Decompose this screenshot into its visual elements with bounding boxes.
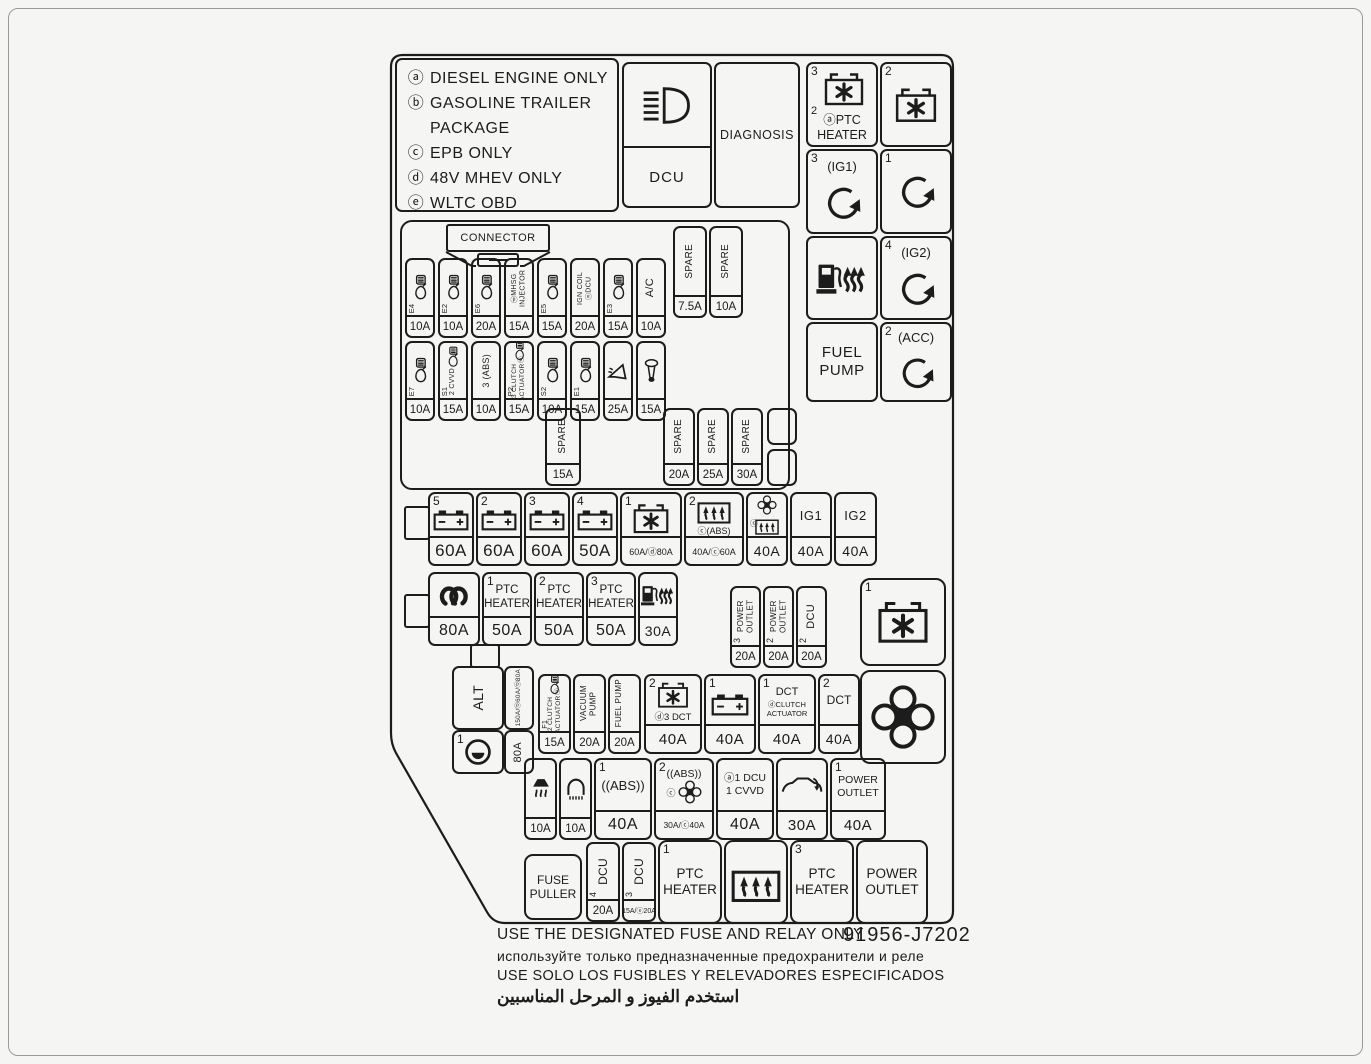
- fuse-sub: P2: [507, 387, 515, 396]
- fuse-amp: 40A/ⓒ60A: [686, 536, 742, 564]
- fuse-label: HEATER: [536, 598, 582, 612]
- relay-ig2: 4 (IG2): [880, 236, 952, 320]
- relay-number: 3: [811, 65, 818, 77]
- cooling-fan-icon: [870, 684, 936, 750]
- fuse-label: ((ABS)): [601, 778, 644, 793]
- fuse-number: 2: [649, 677, 656, 689]
- injector-icon: [412, 274, 429, 301]
- fuse-vehicle: 30A: [776, 758, 828, 840]
- fuse-number: 2: [799, 638, 808, 643]
- fuse-label: ACTUATOR: [767, 709, 808, 718]
- part-number: 91956-J7202: [843, 924, 971, 947]
- heater-blower-icon: [530, 777, 552, 801]
- fuse-power-outlet: 1POWEROUTLET40A: [830, 758, 886, 840]
- fuse: 10A: [524, 758, 557, 840]
- relay-label: FUEL: [822, 344, 862, 362]
- relay-acc: 2 (ACC): [880, 322, 952, 402]
- fuse-label: A/C: [644, 278, 657, 297]
- horn-icon: [606, 359, 630, 382]
- relay-label: PUMP: [819, 362, 864, 380]
- fuse-number: 2: [766, 638, 775, 643]
- low-beam-headlight-icon: [638, 84, 696, 127]
- fuse: 15A: [636, 341, 666, 421]
- fuse-label: POWER OUTLET: [769, 588, 789, 645]
- fuse-amp: 20A: [798, 645, 825, 666]
- fuse-label: DCU: [632, 858, 646, 885]
- fuse-amp: 20A: [732, 645, 759, 666]
- fuse-amp: 15A: [440, 398, 466, 419]
- fuse-label: OUTLET: [837, 787, 878, 800]
- fuse-amp: 7.5A: [675, 295, 705, 316]
- fuse-amp: 10A: [407, 398, 433, 419]
- fuse-amp: 40A: [760, 724, 814, 752]
- legend-text: 48V MHEV ONLY: [430, 166, 562, 191]
- fuse-amp: 25A: [605, 398, 631, 419]
- dcu-cell: DCU: [624, 148, 710, 206]
- relay-fuel-heater: [806, 236, 878, 320]
- legend-key: ⓓ: [407, 166, 425, 191]
- fuse-number: 1: [709, 677, 716, 689]
- fuse-number: 1: [487, 575, 494, 587]
- fuse-amp: 50A: [574, 536, 616, 564]
- fuse-sub: E1: [573, 387, 581, 396]
- spare-fuse: SPARE25A: [697, 408, 729, 486]
- fuse-label: FUEL PUMP: [614, 679, 636, 727]
- fuse-amp: 10A: [440, 315, 466, 336]
- relay-number: 2: [885, 65, 892, 77]
- diagnosis-label: DIAGNOSIS: [716, 64, 798, 206]
- fuse-number: 3: [529, 495, 536, 507]
- fuse: 3 CLUTCH ACTUATORⓓP215A: [504, 341, 534, 421]
- injector-icon: [610, 274, 627, 301]
- relay-number: 3: [795, 843, 802, 855]
- injector-icon: [577, 357, 594, 384]
- relay-ptc1: 1 PTC HEATER: [658, 840, 722, 924]
- fuse-sub: S1: [441, 387, 449, 396]
- rotary-start-icon: [897, 354, 935, 392]
- fuse-label: DCT: [767, 686, 808, 699]
- legend-key: [407, 116, 425, 141]
- ptc-fuse: 30A: [638, 572, 678, 646]
- relay-number: 2: [811, 106, 817, 117]
- mount-tab: [404, 594, 430, 628]
- fuse-dcu: DCU315A/ⓔ20A: [622, 842, 656, 922]
- battery-icon: [529, 507, 565, 532]
- fan-box-icon: [822, 71, 866, 107]
- fuse-label: HEATER: [484, 598, 530, 612]
- fuse-amp: 20A: [665, 463, 693, 484]
- main-fuse: 560A: [428, 492, 474, 566]
- injector-icon: [544, 357, 561, 384]
- relay-label: PTC: [809, 866, 836, 882]
- fuse-amp: 10A: [407, 315, 433, 336]
- alt-fuse: ALT: [452, 666, 504, 730]
- relay-label: OUTLET: [865, 882, 918, 898]
- relay-ig1: 3 (IG1): [806, 149, 878, 234]
- battery-icon: [481, 507, 517, 532]
- fuse-amp: 15A: [540, 731, 569, 752]
- fuse-dct-clutch: 1DCTⓓCLUTCHACTUATOR40A: [758, 674, 816, 754]
- legend-text: DIESEL ENGINE ONLY: [430, 66, 608, 91]
- fuse-number: 2: [539, 575, 546, 587]
- fuse-amp: 30A: [640, 616, 676, 644]
- legend-key: ⓐ: [407, 66, 425, 91]
- fuse-label: ⓓCLUTCH: [767, 700, 808, 709]
- fuse-amp: 40A: [792, 536, 830, 564]
- fuse-amp: 80A: [430, 616, 478, 644]
- fuse-number: 4: [577, 495, 584, 507]
- fuse-sub: S2: [540, 387, 548, 396]
- fuse: E410A: [405, 258, 435, 338]
- warning-text-ru: используйте только предназначенные предо…: [497, 948, 924, 964]
- relay-label: PTC: [677, 866, 704, 882]
- fuse: 140A: [704, 674, 756, 754]
- fuse-abs-fan: 2((ABS))ⓒ30A/ⓒ40A: [654, 758, 714, 840]
- fuse-dcu-cvvd: ⓐ1 DCU1 CVVD40A: [716, 758, 774, 840]
- rear-defrost-icon: [731, 861, 781, 903]
- fuse-label: POWER OUTLET: [736, 588, 756, 645]
- fuse-label: DCU: [805, 604, 818, 629]
- fuse-number: 1: [835, 761, 842, 773]
- relay-number: 2: [885, 325, 892, 337]
- fuse-dct: 2DCT40A: [818, 674, 860, 754]
- fuse-amp: 50A: [536, 616, 582, 644]
- legend-key: ⓑ: [407, 91, 425, 116]
- siren-horn-icon: [644, 358, 659, 384]
- fuse-label: ⓓ3 DCT: [655, 709, 692, 723]
- fuse: E710A: [405, 341, 435, 421]
- fuse-amp: 20A: [473, 315, 499, 336]
- fuse-amp: 40A: [596, 810, 650, 838]
- mount-tab: [404, 506, 430, 540]
- warning-text-ar: استخدم الفيوز و المرحل المناسبين: [497, 987, 739, 1007]
- relay-number: 1: [663, 843, 670, 855]
- mount-tab: [470, 644, 500, 668]
- spare-fuse: SPARE30A: [731, 408, 763, 486]
- legend-text: PACKAGE: [430, 116, 510, 141]
- fan-box-icon: [656, 681, 690, 709]
- spare-fuse: SPARE 15A: [545, 408, 581, 486]
- main-fuse: 360A: [524, 492, 570, 566]
- fuel-pump-heater-icon: [641, 582, 675, 608]
- fuse-label: ⓐ1 DCU: [724, 772, 766, 785]
- fuse-label: 2 CVVD: [449, 368, 457, 395]
- fuse: E515A: [537, 258, 567, 338]
- spare-fuse: SPARE 10A: [709, 226, 743, 318]
- fuse-amp: 150A/ⓓ60A/ⓓ80A: [515, 669, 523, 726]
- fuse-amp: 20A: [610, 731, 639, 752]
- fuse-number: 3: [591, 575, 598, 587]
- injector-icon: [445, 274, 462, 301]
- rear-defrost-icon: [697, 496, 731, 524]
- lamp-icon: [565, 776, 587, 802]
- main-fuse: IG140A: [790, 492, 832, 566]
- spare-fuse: SPARE20A: [663, 408, 695, 486]
- fuse-amp: 40A: [706, 724, 754, 752]
- fuse: 2 CVVDS115A: [438, 341, 468, 421]
- fuse-amp: 20A: [572, 315, 598, 336]
- fuse-amp: 20A: [765, 645, 792, 666]
- legend-text: GASOLINE TRAILER: [430, 91, 592, 116]
- fuse-amp: 60A: [526, 536, 568, 564]
- ptc-fuse: 80A: [428, 572, 480, 646]
- fuse-amp: 20A: [575, 731, 604, 752]
- outlet-fuse: POWER OUTLET320A: [730, 586, 761, 668]
- battery-icon: [711, 691, 749, 717]
- fuse-amp: 15A/ⓔ20A: [624, 899, 654, 920]
- legend: ⓐDIESEL ENGINE ONLY ⓑGASOLINE TRAILER PA…: [395, 58, 619, 212]
- main-fuse: 2ⓒ(ABS)40A/ⓒ60A: [684, 492, 744, 566]
- fuse-number: 2: [481, 495, 488, 507]
- alt-fuse-amp: 150A/ⓓ60A/ⓓ80A: [504, 666, 534, 730]
- fuse-label: ⓒ: [750, 518, 758, 529]
- fuse-amp: 10A: [638, 315, 664, 336]
- spare-label: SPARE: [673, 419, 685, 454]
- fuse-amp: 30A: [778, 810, 826, 838]
- cooling-fan-icon: [678, 780, 702, 804]
- fuse-amp: 50A: [484, 616, 530, 644]
- fuse-amp: 10A: [561, 817, 590, 838]
- legend-key: ⓒ: [407, 141, 425, 166]
- relay-big: 1: [860, 578, 946, 666]
- fuse-sub: F1: [541, 720, 549, 729]
- fuse-label: IG1: [800, 508, 822, 523]
- relay-1: 1: [880, 149, 952, 234]
- relay-number: 1: [885, 152, 892, 164]
- spare-label: SPARE: [684, 244, 696, 279]
- fuse-amp: 80A: [512, 742, 525, 762]
- fuse-label: 1 CVVD: [724, 785, 766, 798]
- fuse-number: 3: [625, 892, 634, 897]
- fuse: FUEL PUMP20A: [608, 674, 641, 754]
- fuse-amp: 60A: [430, 536, 472, 564]
- fuse: 3 (ABS)10A: [471, 341, 501, 421]
- fan-box-icon: [894, 86, 938, 124]
- fuse: 25A: [603, 341, 633, 421]
- empty-slot: [767, 449, 797, 486]
- rotary-start-icon: [822, 183, 862, 223]
- fuse-label: 2 CLUTCH ACTUATORⓓ: [547, 695, 563, 732]
- fuse: 10A: [559, 758, 592, 840]
- fuel-pump-heater-icon: [816, 259, 868, 297]
- fuse-box-diagram: ⓐDIESEL ENGINE ONLY ⓑGASOLINE TRAILER PA…: [0, 0, 1371, 1064]
- relay-label: ⓐPTC: [808, 113, 876, 128]
- relay-ptc3: 3 PTC HEATER: [790, 840, 854, 924]
- fuse: ⓓMHSG INJECTOR15A: [504, 258, 534, 338]
- fuse-amp: 15A: [605, 315, 631, 336]
- fuse-amp: 60A/ⓓ80A: [622, 536, 680, 564]
- main-fuse: IG240A: [834, 492, 877, 566]
- rotary-start-icon: [896, 269, 936, 309]
- injector-icon: [478, 274, 495, 301]
- outlet-fuse: DCU220A: [796, 586, 827, 668]
- fuse-label: ((ABS)): [667, 768, 702, 780]
- fuse-amp: 30A/ⓒ40A: [656, 810, 712, 838]
- fan-box-icon: [632, 502, 670, 535]
- fuse-puller-label: FUSE: [537, 873, 569, 887]
- fuse-amp: 40A: [718, 810, 772, 838]
- fuse: E315A: [603, 258, 633, 338]
- fuse-number: 2: [823, 677, 830, 689]
- relay-label: HEATER: [663, 882, 717, 898]
- connector-box: CONNECTOR: [446, 224, 550, 252]
- fuse-amp: 15A: [506, 398, 532, 419]
- battery-icon: [577, 507, 613, 532]
- fuse: E210A: [438, 258, 468, 338]
- fuse-amp: 25A: [699, 463, 727, 484]
- fuse-number: 3: [733, 638, 742, 643]
- fuse-amp: 40A: [820, 724, 858, 752]
- spare-label: SPARE: [720, 244, 732, 279]
- fuse-label: HEATER: [588, 598, 634, 612]
- fuse-number: 2: [689, 495, 696, 507]
- legend-text: EPB ONLY: [430, 141, 513, 166]
- fuse-sub: E7: [408, 387, 416, 396]
- fuse-number: 1: [625, 495, 632, 507]
- fuse-sub: E2: [441, 304, 449, 313]
- relay-dct: 2ⓓ3 DCT40A: [644, 674, 702, 754]
- fuse: 2 CLUTCH ACTUATORⓓF115A: [538, 674, 571, 754]
- outlet-fuse: POWER OUTLET220A: [763, 586, 794, 668]
- cooling-fan-box: [860, 670, 946, 764]
- relay-ptc-heater: 3 2 ⓐPTC HEATER: [806, 62, 878, 147]
- relay-2: 2: [880, 62, 952, 147]
- fuse-number: 5: [433, 495, 440, 507]
- injector-icon: [544, 274, 561, 301]
- fuse-sub: E6: [474, 304, 482, 313]
- empty-slot: [767, 408, 797, 445]
- fan-box-icon: [876, 599, 930, 645]
- main-fuse: ⓒ40A: [746, 492, 788, 566]
- fuse-amp: 10A: [526, 817, 555, 838]
- relay-number: 1: [865, 581, 872, 593]
- fuse-label: DCT: [827, 693, 852, 707]
- warning-text-en: USE THE DESIGNATED FUSE AND RELAY ONLY: [497, 926, 864, 944]
- fuse-sub: E5: [540, 304, 548, 313]
- fuse-dcu: DCU420A: [586, 842, 620, 922]
- fuse-amp: 60A: [478, 536, 520, 564]
- ptc-fuse: 2PTCHEATER50A: [534, 572, 584, 646]
- diagnosis-box: DIAGNOSIS: [714, 62, 800, 208]
- relay-number: 3: [811, 152, 818, 164]
- battery-icon: [433, 507, 469, 532]
- fuse-label: POWER: [837, 774, 878, 787]
- fuse-amp: 50A: [588, 616, 634, 644]
- fuse-label: ALT: [470, 685, 487, 711]
- fuse-amp: 10A: [711, 295, 741, 316]
- relay-label: POWER: [866, 866, 917, 882]
- fuse-number: 1: [457, 733, 464, 745]
- fuse-sub: ⓒ: [666, 786, 675, 799]
- fuse-amp: 40A: [646, 724, 700, 752]
- relay-defrost: [724, 840, 788, 924]
- warning-text-es: USE SOLO LOS FUSIBLES Y RELEVADORES ESPE…: [497, 968, 945, 984]
- fuse-amp: 15A: [547, 463, 579, 484]
- fuse-puller-label: PULLER: [530, 887, 577, 901]
- fuse-amp: 20A: [588, 899, 618, 920]
- vehicle-icon: [781, 775, 823, 796]
- headlight-dcu-box: DCU: [622, 62, 712, 208]
- injector-icon: [412, 357, 429, 384]
- fuse-amp: 40A: [832, 810, 884, 838]
- fuse-amp: 15A: [638, 398, 664, 419]
- legend-text: WLTC OBD: [430, 191, 517, 216]
- spare-label: SPARE: [741, 419, 753, 454]
- spare-label: SPARE: [557, 419, 569, 454]
- fuse: A/C10A: [636, 258, 666, 338]
- ptc-fuse: 1PTCHEATER50A: [482, 572, 532, 646]
- relay-power-outlet: POWER OUTLET: [856, 840, 928, 924]
- relay-number: 4: [885, 239, 892, 251]
- injector-icon: [446, 346, 460, 368]
- fuse-label: DCU: [596, 858, 610, 885]
- relay-label: (ACC): [882, 330, 950, 346]
- fuse-number: 1: [599, 761, 606, 773]
- fuse: VACUUM PUMP20A: [573, 674, 606, 754]
- fuse-amp: 40A: [836, 536, 875, 564]
- fuse: E620A: [471, 258, 501, 338]
- alternator-icon: [463, 737, 493, 767]
- relay-fuel-pump: FUEL PUMP: [806, 322, 878, 402]
- fuse-amp: 15A: [506, 315, 532, 336]
- fuse-sub: E3: [606, 304, 614, 313]
- fuse-amp: 40A: [748, 536, 786, 564]
- legend-key: ⓔ: [407, 191, 425, 216]
- fuse: IGN COIL ⓐDCU20A: [570, 258, 600, 338]
- fuse-sub: E4: [408, 304, 416, 313]
- fuse-puller: FUSE PULLER: [524, 854, 582, 920]
- fuse-amp: 30A: [733, 463, 761, 484]
- fuse-amp: 10A: [473, 398, 499, 419]
- fuse-label: IGN COIL ⓐDCU: [577, 261, 594, 315]
- fuse-label: 3 (ABS): [481, 354, 492, 388]
- fuse-number: 2: [659, 761, 666, 773]
- cooling-fan-icon: [757, 495, 777, 515]
- connector-label: CONNECTOR: [448, 226, 548, 250]
- fuse-number: 4: [589, 892, 598, 897]
- relay-label: (IG1): [808, 159, 876, 175]
- ptc-fuse: 3PTCHEATER50A: [586, 572, 636, 646]
- fuse-abs: 1((ABS))40A: [594, 758, 652, 840]
- fuse-number: 1: [763, 677, 770, 689]
- relay-label: HEATER: [808, 128, 876, 143]
- spare-label: SPARE: [707, 419, 719, 454]
- main-fuse: 450A: [572, 492, 618, 566]
- rotary-start-icon: [896, 172, 936, 212]
- fuse-amp: 15A: [539, 315, 565, 336]
- relay-label: (IG2): [882, 245, 950, 261]
- spare-fuse: SPARE 7.5A: [673, 226, 707, 318]
- glow-plug-icon: [436, 582, 472, 608]
- fuse-label: IG2: [844, 508, 866, 523]
- fuse-label: ⓒ(ABS): [697, 524, 730, 537]
- fuse-label: VACUUM PUMP: [579, 676, 601, 731]
- fuse-label: ⓓMHSG INJECTOR: [511, 261, 528, 315]
- main-fuse: 160A/ⓓ80A: [620, 492, 682, 566]
- alternator-fuse: 1: [452, 730, 504, 774]
- main-fuse: 260A: [476, 492, 522, 566]
- relay-label: HEATER: [795, 882, 849, 898]
